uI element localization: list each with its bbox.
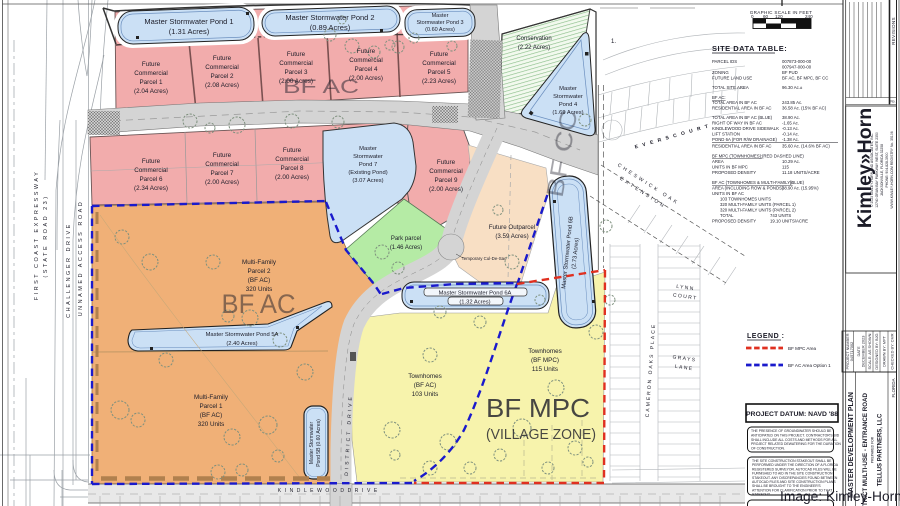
svg-text:(3.59 Acres): (3.59 Acres) [495, 233, 528, 240]
svg-text:115 Units: 115 Units [532, 366, 558, 373]
svg-text:BF MPC (TOWNHOMES):: BF MPC (TOWNHOMES): [712, 154, 762, 159]
svg-text:Temporary Cul-De-Sac: Temporary Cul-De-Sac [462, 256, 507, 261]
svg-text:(BF AC): (BF AC) [200, 412, 222, 419]
svg-text:115: 115 [782, 165, 789, 170]
svg-text:RESIDENTIAL AREA IN BF AC: RESIDENTIAL AREA IN BF AC [712, 106, 772, 111]
svg-text:Master Stormwater Pond 2: Master Stormwater Pond 2 [285, 13, 374, 22]
svg-text:96.30 Ac.±: 96.30 Ac.± [782, 85, 803, 90]
svg-text:(BLUE): (BLUE) [790, 180, 805, 185]
svg-text:CHALLENGER DRIVE: CHALLENGER DRIVE [66, 222, 72, 318]
svg-text:Future: Future [142, 61, 161, 68]
svg-text:DECEMBER 2023: DECEMBER 2023 [861, 336, 866, 368]
svg-text:Parcel 8: Parcel 8 [280, 165, 304, 172]
svg-text:Conservation: Conservation [516, 36, 551, 42]
svg-text:Parcel 4: Parcel 4 [354, 66, 378, 73]
svg-text:THE PRESENCE OF GROUNDWATER SH: THE PRESENCE OF GROUNDWATER SHOULD BE [751, 429, 832, 433]
svg-text:(2.00 Acres): (2.00 Acres) [275, 174, 309, 181]
svg-text:(2.00 Acres): (2.00 Acres) [279, 78, 313, 85]
svg-text:ZONING: ZONING [712, 70, 729, 75]
svg-text:243.85 Ac.: 243.85 Ac. [782, 100, 802, 105]
svg-text:Townhomes: Townhomes [528, 348, 562, 355]
svg-text:(0.60 Acres): (0.60 Acres) [425, 27, 455, 33]
svg-text:103 Units: 103 Units [412, 391, 439, 398]
svg-text:RESIDENTIAL AREA IN BF AC: RESIDENTIAL AREA IN BF AC [712, 144, 772, 149]
svg-text:UNITS IN BF MPC: UNITS IN BF MPC [712, 165, 748, 170]
svg-text:11.18 UNITS/ACRE: 11.18 UNITS/ACRE [782, 170, 820, 175]
svg-text:LIFT STATION: LIFT STATION [712, 132, 740, 137]
svg-text:(2.40 Acres): (2.40 Acres) [226, 341, 257, 347]
svg-text:JACKSONVILLE, FLORIDA 32258: JACKSONVILLE, FLORIDA 32258 [880, 144, 884, 196]
svg-text:PROPOSED DENSITY: PROPOSED DENSITY [712, 219, 756, 224]
svg-text:(BF AC): (BF AC) [414, 382, 436, 389]
svg-text:REVISIONS: REVISIONS [891, 17, 896, 45]
svg-text:BF PUD: BF PUD [782, 70, 798, 75]
svg-text:CHECKED BY: CMR: CHECKED BY: CMR [890, 333, 895, 369]
svg-text:10.29 Ac.: 10.29 Ac. [782, 159, 800, 164]
svg-text:SITE DATA TABLE:: SITE DATA TABLE: [712, 44, 787, 53]
svg-text:PROJECT DATUM: NAVD '88: PROJECT DATUM: NAVD '88 [746, 411, 838, 418]
svg-text:Commercial: Commercial [134, 70, 168, 77]
svg-text:(3.07 Acres): (3.07 Acres) [352, 178, 383, 184]
svg-text:(1.31 Acres): (1.31 Acres) [169, 27, 210, 36]
svg-text:(2.23 Acres): (2.23 Acres) [422, 78, 456, 85]
svg-text:12740 GRAN BAY PARKWAY WEST, S: 12740 GRAN BAY PARKWAY WEST, SUITE 2350 [875, 132, 879, 208]
svg-text:PREPARED FOR: PREPARED FOR [871, 436, 875, 463]
svg-text:FUTURE LAND USE: FUTURE LAND USE [712, 76, 752, 81]
svg-text:POND 6A (FOR R/W DRAINAGE): POND 6A (FOR R/W DRAINAGE) [712, 137, 778, 142]
svg-text:Master: Master [359, 146, 377, 152]
svg-text:WWW.KIMLEY-HORN.COM REGISTRY: WWW.KIMLEY-HORN.COM REGISTRY No. 35106 [890, 131, 894, 208]
svg-text:Future: Future [437, 159, 456, 166]
svg-text:FIRST COAST EXPRESSWAY: FIRST COAST EXPRESSWAY [34, 170, 40, 301]
svg-text:BF MPC Area: BF MPC Area [788, 346, 817, 351]
svg-text:(2.22 Acres): (2.22 Acres) [518, 45, 550, 51]
svg-text:STAKEOUT.: STAKEOUT. [752, 493, 771, 497]
svg-text:PHONE: 904-828-3900: PHONE: 904-828-3900 [885, 152, 889, 187]
svg-text:Parcel 1: Parcel 1 [139, 79, 163, 86]
svg-text:SCALE: AS SHOWN: SCALE: AS SHOWN [867, 333, 872, 369]
svg-text:AREA: AREA [712, 159, 724, 164]
svg-text:KINDLEWOOD DRIVE SIDEWALK: KINDLEWOOD DRIVE SIDEWALK [712, 126, 779, 131]
svg-text:(2.00 Acres): (2.00 Acres) [429, 186, 463, 193]
svg-text:No.: No. [891, 100, 896, 104]
svg-text:35.60 Ac. (14.6% BF AC): 35.60 Ac. (14.6% BF AC) [782, 144, 830, 149]
svg-text:DESIGNED BY: BJG: DESIGNED BY: BJG [874, 333, 879, 369]
svg-text:Commercial: Commercial [429, 168, 463, 175]
svg-text:(1.69 Acres): (1.69 Acres) [552, 110, 583, 116]
svg-text:Pond 4: Pond 4 [559, 102, 578, 108]
svg-text:Stormwater Pond 3: Stormwater Pond 3 [416, 20, 463, 26]
svg-text:Commercial: Commercial [205, 64, 239, 71]
svg-text:743 UNITS: 743 UNITS [770, 213, 791, 218]
svg-text:320 MULTI-FAMILY UNITS (PARCEL: 320 MULTI-FAMILY UNITS (PARCEL 1) [720, 202, 796, 207]
svg-text:(VILLAGE ZONE): (VILLAGE ZONE) [486, 427, 596, 443]
svg-text:045717002: 045717002 [849, 342, 854, 361]
svg-text:Future: Future [213, 152, 232, 159]
svg-text:Stormwater: Stormwater [553, 94, 583, 100]
svg-text:Parcel 9: Parcel 9 [434, 177, 458, 184]
svg-text:Future Outparcel: Future Outparcel [489, 224, 535, 231]
svg-text:Parcel 2: Parcel 2 [247, 268, 271, 275]
svg-text:Master Stormwater Pond 5A: Master Stormwater Pond 5A [206, 332, 279, 338]
svg-text:(2.04 Acres): (2.04 Acres) [134, 88, 168, 95]
svg-text:Future: Future [287, 51, 306, 58]
svg-text:Commercial: Commercial [275, 156, 309, 163]
svg-text:© 2023 KIMLEY-HORN AND ASSOCIA: © 2023 KIMLEY-HORN AND ASSOCIATES, INC. [870, 133, 874, 207]
svg-text:Parcel 6: Parcel 6 [139, 176, 163, 183]
svg-text:BF AC, BF MPC, BF CC: BF AC, BF MPC, BF CC [782, 76, 828, 81]
svg-text:36.58 Ac. (15% BF AC): 36.58 Ac. (15% BF AC) [782, 106, 827, 111]
svg-text:TOTAL AREA IN BF AC (BLUE): TOTAL AREA IN BF AC (BLUE) [712, 115, 773, 120]
svg-text:320 MULTI-FAMILY UNITS (PARCEL: 320 MULTI-FAMILY UNITS (PARCEL 2) [720, 208, 796, 213]
svg-text:Commercial: Commercial [422, 60, 456, 67]
svg-text:(0.89 Acres): (0.89 Acres) [310, 23, 351, 32]
svg-text:RIGHT OF WAY IN BF AC: RIGHT OF WAY IN BF AC [712, 121, 762, 126]
svg-text:-0.13 Ac.: -0.13 Ac. [782, 126, 799, 131]
svg-text:320 Units: 320 Units [198, 421, 225, 428]
svg-text:DRAWN BY: MPT: DRAWN BY: MPT [882, 335, 887, 367]
svg-text:Future: Future [357, 48, 376, 55]
svg-text:103 TOWNHOMES UNITS: 103 TOWNHOMES UNITS [720, 197, 771, 202]
svg-text:Master: Master [432, 13, 449, 19]
svg-text:Stormwater: Stormwater [353, 154, 383, 160]
svg-text:Parcel 5: Parcel 5 [427, 69, 451, 76]
svg-text:(1.46 Acres): (1.46 Acres) [390, 245, 422, 251]
svg-text:Townhomes: Townhomes [408, 373, 442, 380]
svg-text:Parcel 2: Parcel 2 [210, 73, 234, 80]
svg-text:(Existing Pond): (Existing Pond) [348, 170, 387, 176]
svg-text:Park parcel: Park parcel [391, 236, 421, 242]
svg-text:007947-000-00: 007947-000-00 [782, 65, 812, 70]
svg-text:LEGEND :: LEGEND : [747, 333, 784, 340]
svg-text:Commercial: Commercial [349, 57, 383, 64]
svg-text:007873-000-00: 007873-000-00 [782, 59, 812, 64]
svg-text:TOTAL SITE AREA: TOTAL SITE AREA [712, 85, 749, 90]
svg-text:K I N D L E W O O D D R I V: K I N D L E W O O D D R I V E [278, 488, 379, 494]
svg-text:Future: Future [142, 158, 161, 165]
svg-text:Future: Future [430, 51, 449, 58]
svg-text:(2.08 Acres): (2.08 Acres) [205, 82, 239, 89]
svg-text:PROJECT RELATED DEWATERING FOR: PROJECT RELATED DEWATERING FOR THE DURAT… [751, 442, 841, 446]
svg-text:BF MPC: BF MPC [486, 393, 590, 423]
svg-text:SHALL INCLUDE ALL COSTS AND ME: SHALL INCLUDE ALL COSTS AND METHODS FOR … [751, 438, 838, 442]
svg-text:(RED DASHED LINE): (RED DASHED LINE) [762, 154, 804, 159]
svg-text:Parcel 7: Parcel 7 [210, 170, 234, 177]
svg-text:BF AC Area Option 1: BF AC Area Option 1 [788, 363, 831, 368]
svg-text:BF AC: BF AC [222, 289, 296, 319]
svg-text:Future: Future [213, 55, 232, 62]
svg-text:Multi-Family: Multi-Family [194, 394, 229, 401]
svg-text:(BF MPC): (BF MPC) [531, 357, 559, 364]
svg-text:Image: Kimley-Horn: Image: Kimley-Horn [780, 489, 900, 504]
svg-text:Master Stormwater: Master Stormwater [309, 422, 315, 465]
svg-text:Master: Master [559, 86, 577, 92]
svg-text:UNNAMED ACCESS ROAD: UNNAMED ACCESS ROAD [78, 200, 84, 317]
svg-text:TOTAL AREA IN BF AC: TOTAL AREA IN BF AC [712, 100, 757, 105]
svg-text:(1.32 Acres): (1.32 Acres) [459, 300, 490, 306]
svg-text:1.: 1. [611, 39, 616, 45]
svg-text:ANTICIPATED ON THIS PROJECT.: ANTICIPATED ON THIS PROJECT. CONTRACTOR'… [751, 433, 840, 437]
svg-text:-1.65 Ac.: -1.65 Ac. [782, 121, 799, 126]
svg-text:-0.14 Ac.: -0.14 Ac. [782, 132, 799, 137]
svg-text:FLORIDA: FLORIDA [891, 378, 896, 397]
svg-text:Pond 5B (0.60 Acres): Pond 5B (0.60 Acres) [316, 419, 322, 467]
svg-text:19.10 UNITS/ACRE: 19.10 UNITS/ACRE [770, 219, 808, 224]
svg-text:Commercial: Commercial [205, 161, 239, 168]
svg-text:MASTER DEVELOPMENT PLAN: MASTER DEVELOPMENT PLAN [848, 392, 855, 498]
svg-text:38.90 Ac. (15.95%): 38.90 Ac. (15.95%) [782, 186, 819, 191]
svg-text:(2.00 Acres): (2.00 Acres) [349, 75, 383, 82]
svg-text:(BF AC): (BF AC) [248, 277, 270, 284]
svg-text:38.90 Ac.: 38.90 Ac. [782, 115, 800, 120]
svg-text:-1.38 Ac.: -1.38 Ac. [782, 137, 799, 142]
svg-text:TOTAL: TOTAL [720, 213, 734, 218]
svg-text:Master Stormwater Pond 6A: Master Stormwater Pond 6A [439, 291, 512, 297]
svg-text:Master Stormwater Pond 1: Master Stormwater Pond 1 [144, 17, 233, 26]
svg-text:TELLUS PARTNERS, LLC: TELLUS PARTNERS, LLC [878, 413, 884, 486]
svg-text:PROPOSED DENSITY: PROPOSED DENSITY [712, 170, 756, 175]
svg-text:UNITS IN BF AC: UNITS IN BF AC [712, 191, 744, 196]
svg-text:Commercial: Commercial [134, 167, 168, 174]
svg-text:PARCEL IDS: PARCEL IDS [712, 59, 737, 64]
svg-text:(STATE ROAD 23): (STATE ROAD 23) [43, 194, 49, 277]
svg-text:BF AC (TOWNHOMES & MULTI-FAMIL: BF AC (TOWNHOMES & MULTI-FAMILY): [712, 180, 793, 185]
svg-text:Parcel 3: Parcel 3 [284, 69, 308, 76]
svg-text:Parcel 1: Parcel 1 [199, 403, 223, 410]
svg-text:320 Units: 320 Units [246, 286, 273, 293]
svg-text:Multi-Family: Multi-Family [242, 259, 277, 266]
svg-text:Commercial: Commercial [279, 60, 313, 67]
svg-text:OF CONSTRUCTION.: OF CONSTRUCTION. [751, 447, 785, 451]
svg-text:(2.00 Acres): (2.00 Acres) [205, 179, 239, 186]
svg-text:AREA (INCLUDING ROW & PONDS): AREA (INCLUDING ROW & PONDS) [712, 186, 784, 191]
svg-text:Future: Future [283, 147, 302, 154]
svg-text:(2.34 Acres): (2.34 Acres) [134, 185, 168, 192]
svg-text:Pond 7: Pond 7 [359, 162, 377, 168]
